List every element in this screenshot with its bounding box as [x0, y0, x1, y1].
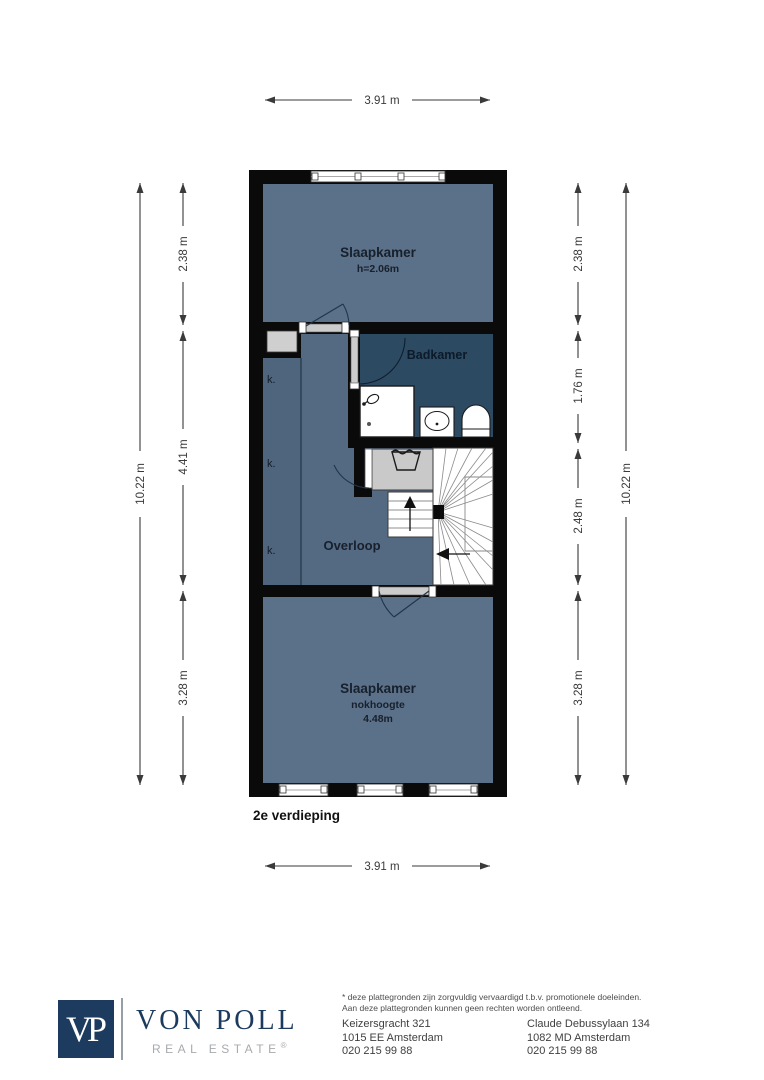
bedroom-bottom-ridge-label: nokhoogte [351, 699, 405, 711]
shower [360, 386, 414, 437]
wall-laundry-left [354, 448, 365, 490]
toilet [462, 405, 490, 437]
logo-divider [121, 998, 123, 1060]
bedroom-bottom-label: Slaapkamer [340, 681, 417, 696]
brand-tagline: REAL ESTATE® [152, 1041, 287, 1056]
brand-name: VON POLL [136, 1005, 298, 1037]
disclaimer-line-1: * deze plattegronden zijn zorgvuldig ver… [342, 992, 641, 1003]
disclaimer: * deze plattegronden zijn zorgvuldig ver… [342, 992, 641, 1014]
bedroom-top-height-note: h=2.06m [357, 263, 399, 275]
window-bottom-2 [357, 784, 403, 796]
von-poll-logo-icon: VP [58, 1000, 114, 1058]
dim-width-bottom: 3.91 m [364, 861, 399, 873]
laundry-door-leaf [365, 449, 372, 488]
office-left-city: 1015 EE Amsterdam [342, 1032, 443, 1046]
office-left-phone: 020 215 99 88 [342, 1045, 443, 1059]
office-left-street: Keizersgracht 321 [342, 1018, 443, 1032]
dim-right-seg-3: 2.48 m [573, 498, 585, 533]
office-right-city: 1082 MD Amsterdam [527, 1032, 650, 1046]
disclaimer-line-2: Aan deze plattegronden kunnen geen recht… [342, 1003, 641, 1014]
registered-mark: ® [281, 1041, 287, 1050]
dim-height-right-total: 10.22 m [621, 463, 633, 505]
closet-label-2: k. [267, 458, 276, 470]
office-right-street: Claude Debussylaan 134 [527, 1018, 650, 1032]
dim-right-seg-2: 1.76 m [573, 368, 585, 403]
toilet-icon [462, 405, 490, 437]
office-address-left: Keizersgracht 321 1015 EE Amsterdam 020 … [342, 1018, 443, 1059]
bedroom-bottom-ridge-value: 4.48m [363, 713, 393, 725]
dim-right-seg-1: 2.38 m [573, 236, 585, 271]
landing-label: Overloop [323, 538, 380, 553]
logo-monogram: VP [66, 1008, 106, 1050]
dim-right-seg-4: 3.28 m [573, 670, 585, 705]
closet-label-1: k. [267, 374, 276, 386]
window-top [311, 171, 445, 182]
office-address-right: Claude Debussylaan 134 1082 MD Amsterdam… [527, 1018, 650, 1059]
wall-bedroomtop-landing [263, 322, 493, 334]
wall-stair-stub [354, 487, 372, 497]
shower-drain [367, 422, 371, 426]
dim-left-seg-3: 3.28 m [178, 670, 190, 705]
window-bottom-1 [279, 784, 328, 796]
window-bottom-3 [429, 784, 478, 796]
office-right-phone: 020 215 99 88 [527, 1045, 650, 1059]
wall-bathroom-bottom [348, 437, 493, 448]
bedroom-top-label: Slaapkamer [340, 245, 417, 260]
dim-height-left-total: 10.22 m [135, 463, 147, 505]
bathroom-label: Badkamer [407, 348, 468, 362]
dim-width-top: 3.91 m [364, 95, 399, 107]
floorplan-canvas: Slaapkamer h=2.06m Badkamer Overloop k. … [0, 0, 764, 1080]
dim-left-seg-2: 4.41 m [178, 439, 190, 474]
footer: VP VON POLL REAL ESTATE® * deze plattegr… [0, 985, 764, 1080]
tagline-text: REAL ESTATE [152, 1042, 281, 1056]
dim-left-seg-1: 2.38 m [178, 236, 190, 271]
closet-label-3: k. [267, 545, 276, 557]
floor-title: 2e verdieping [253, 808, 340, 823]
chimney-inset [267, 331, 297, 352]
floorplan-page: Slaapkamer h=2.06m Badkamer Overloop k. … [0, 0, 764, 1080]
sink [420, 407, 454, 437]
